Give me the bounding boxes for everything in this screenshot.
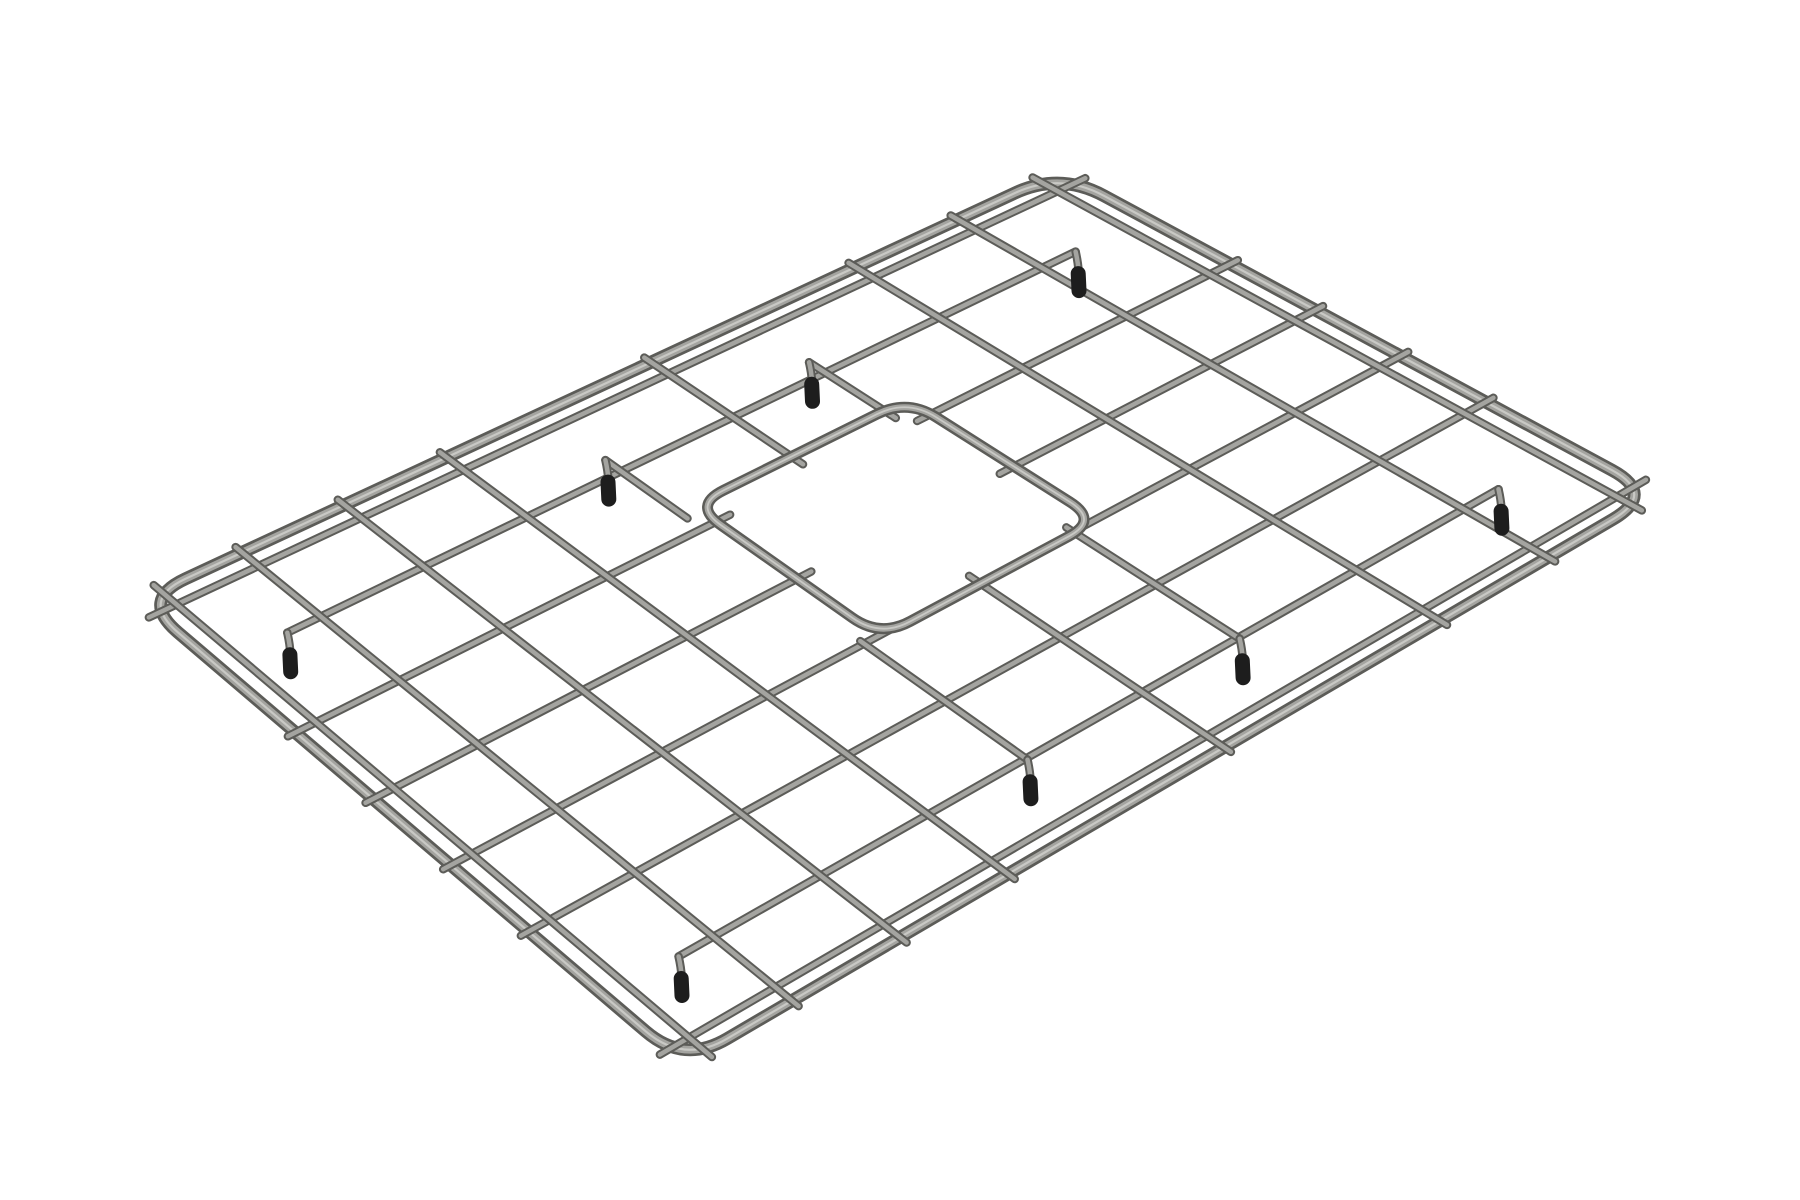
white-background (0, 0, 1800, 1200)
product-photo (0, 0, 1800, 1200)
sink-grid-render (0, 0, 1800, 1200)
